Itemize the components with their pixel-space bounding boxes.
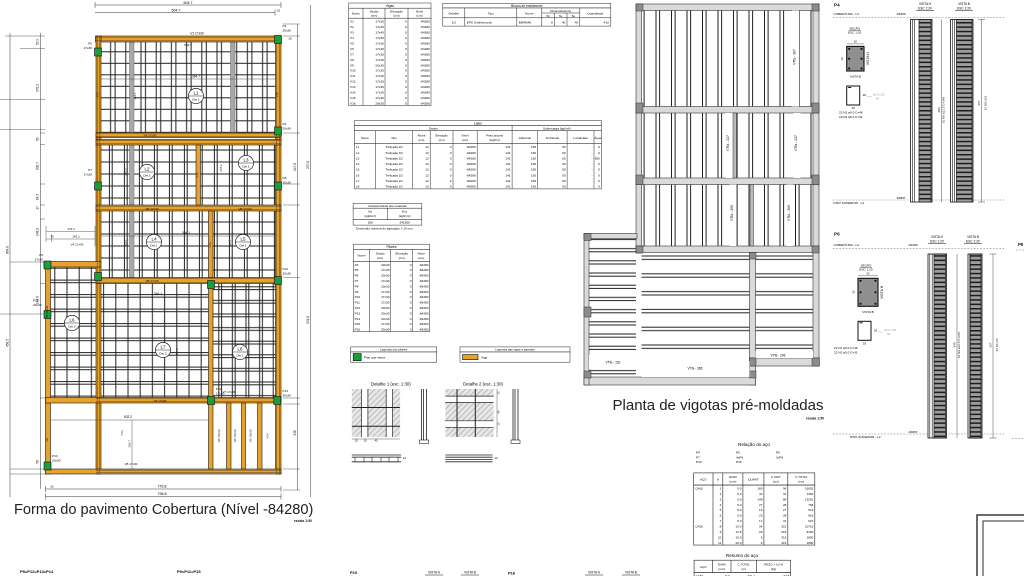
svg-text:150: 150	[531, 179, 536, 183]
svg-text:P4: P4	[355, 263, 359, 267]
svg-text:Localizada: Localizada	[573, 136, 588, 140]
svg-text:0: 0	[410, 263, 412, 267]
svg-text:DIAM: DIAM	[729, 475, 737, 479]
svg-text:5.0: 5.0	[737, 519, 742, 523]
svg-text:-84280: -84280	[420, 91, 430, 95]
svg-text:318.1: 318.1	[124, 239, 128, 247]
svg-text:17x30: 17x30	[375, 52, 384, 56]
svg-text:-84280: -84280	[420, 69, 430, 73]
svg-text:L1: L1	[356, 145, 360, 149]
svg-text:P9: P9	[39, 253, 43, 257]
svg-text:-84280: -84280	[419, 306, 429, 310]
svg-text:Ambiental: Ambiental	[546, 136, 560, 140]
svg-text:11: 11	[718, 541, 721, 545]
svg-text:V7: V7	[350, 52, 354, 56]
svg-text:ESC 1:20: ESC 1:20	[930, 239, 944, 243]
svg-text:12: 12	[425, 173, 429, 177]
svg-text:22 N2 ø5.0 C=31: 22 N2 ø5.0 C=31	[834, 350, 858, 354]
svg-text:237.6: 237.6	[306, 161, 310, 169]
svg-text:-84280: -84280	[896, 12, 906, 16]
svg-text:20x30: 20x30	[381, 317, 390, 321]
svg-text:756: 756	[808, 503, 813, 507]
svg-text:-84280: -84280	[419, 263, 429, 267]
svg-text:-84280: -84280	[908, 243, 918, 247]
svg-text:278.2: 278.2	[219, 164, 223, 172]
svg-text:CA50: CA50	[695, 525, 703, 529]
svg-text:PISO SUPERIOR - L2: PISO SUPERIOR - L2	[850, 435, 881, 439]
svg-text:0: 0	[410, 311, 412, 315]
svg-text:26: 26	[863, 93, 867, 97]
svg-text:L8: L8	[356, 185, 360, 189]
svg-text:17x30: 17x30	[35, 258, 44, 262]
svg-text:Nível: Nível	[462, 134, 469, 138]
svg-text:L3: L3	[244, 158, 249, 163]
svg-text:P10: P10	[355, 295, 361, 299]
svg-text:L2: L2	[356, 151, 360, 155]
svg-text:Det 1: Det 1	[143, 174, 151, 178]
svg-text:V5: V5	[350, 41, 354, 45]
svg-text:P9: P9	[355, 290, 359, 294]
svg-text:Legenda dos pilares: Legenda dos pilares	[380, 348, 408, 352]
svg-text:0: 0	[450, 156, 452, 160]
svg-text:5.0: 5.0	[737, 514, 742, 518]
svg-text:Det 1: Det 1	[150, 244, 158, 248]
svg-text:V9: V9	[350, 63, 354, 67]
svg-text:52.9: 52.9	[36, 39, 40, 45]
svg-text:0: 0	[410, 317, 412, 321]
svg-text:L7: L7	[161, 345, 166, 350]
svg-text:0: 0	[410, 274, 412, 278]
svg-text:SEÇÃO: SEÇÃO	[849, 25, 860, 30]
svg-text:V13: V13	[120, 430, 124, 436]
svg-text:V5 17x30: V5 17x30	[144, 134, 157, 138]
svg-text:367: 367	[977, 100, 981, 105]
svg-text:17x30: 17x30	[375, 96, 384, 100]
svg-text:L7: L7	[356, 179, 360, 183]
svg-text:Sobrecarga (kgf/m²): Sobrecarga (kgf/m²)	[543, 127, 571, 131]
svg-text:17x30: 17x30	[375, 69, 384, 73]
svg-text:Treliçada 1D: Treliçada 1D	[385, 145, 403, 149]
svg-text:VISTA H: VISTA H	[880, 285, 884, 299]
svg-text:L4: L4	[152, 237, 157, 242]
svg-text:P6: P6	[355, 274, 359, 278]
svg-text:VISTA H: VISTA H	[866, 52, 870, 66]
svg-text:V10: V10	[350, 69, 356, 73]
svg-text:QUANT: QUANT	[748, 478, 759, 482]
svg-text:8: 8	[551, 20, 553, 24]
svg-text:141: 141	[505, 185, 510, 189]
svg-text:Elevação: Elevação	[435, 134, 448, 138]
svg-text:44: 44	[759, 492, 763, 496]
svg-text:P7: P7	[696, 455, 700, 459]
svg-text:Treliçada 1D: Treliçada 1D	[385, 173, 403, 177]
svg-text:V14: V14	[266, 433, 270, 439]
svg-text:Ecs: Ecs	[402, 210, 408, 214]
svg-text:N2: N2	[876, 97, 880, 101]
svg-text:12: 12	[425, 162, 429, 166]
svg-text:VB 15x30: VB 15x30	[217, 429, 221, 442]
svg-text:0: 0	[405, 91, 407, 95]
svg-text:0: 0	[410, 295, 412, 299]
svg-text:22 N1 ø5.0 C=46: 22 N1 ø5.0 C=46	[834, 346, 858, 350]
svg-text:20: 20	[866, 271, 870, 275]
svg-text:P4: P4	[834, 3, 840, 8]
svg-text:12: 12	[425, 151, 429, 155]
svg-text:-: -	[591, 168, 592, 172]
svg-text:17x30: 17x30	[84, 46, 93, 50]
svg-text:V16: V16	[350, 101, 356, 105]
svg-text:315: 315	[781, 541, 786, 545]
svg-text:20x30: 20x30	[283, 127, 292, 131]
svg-text:141: 141	[505, 179, 510, 183]
svg-text:SEÇÃO: SEÇÃO	[861, 262, 872, 267]
svg-text:-84280: -84280	[419, 274, 429, 278]
svg-text:-84280: -84280	[420, 52, 430, 56]
svg-text:Treliçada 1D: Treliçada 1D	[385, 185, 403, 189]
svg-text:C.UNIT: C.UNIT	[771, 475, 781, 479]
svg-text:0: 0	[410, 284, 412, 288]
svg-text:Treliçada 1D: Treliçada 1D	[385, 179, 403, 183]
svg-text:Detalhe 1 (esc. 1:30): Detalhe 1 (esc. 1:30)	[371, 381, 411, 386]
svg-text:Dados: Dados	[429, 127, 438, 131]
svg-text:P13: P13	[33, 299, 39, 303]
svg-text:P12: P12	[355, 306, 361, 310]
svg-text:616: 616	[808, 514, 813, 518]
svg-text:17x30: 17x30	[375, 85, 384, 89]
svg-text:P16: P16	[736, 460, 742, 464]
svg-text:-84280: -84280	[420, 85, 430, 89]
svg-text:10710: 10710	[805, 525, 814, 529]
svg-text:-84897: -84897	[896, 196, 906, 200]
svg-text:22 N2 ø5.0 C=31: 22 N2 ø5.0 C=31	[839, 115, 863, 119]
svg-text:456.5: 456.5	[5, 339, 9, 347]
svg-text:34: 34	[759, 525, 763, 529]
svg-text:148.0: 148.0	[36, 228, 40, 236]
svg-text:P8: P8	[283, 176, 287, 180]
svg-text:50: 50	[562, 179, 566, 183]
svg-text:0: 0	[450, 173, 452, 177]
svg-text:Det 1: Det 1	[242, 165, 250, 169]
svg-text:150: 150	[531, 156, 536, 160]
svg-text:-84280: -84280	[420, 20, 430, 24]
svg-text:-84280: -84280	[420, 80, 430, 84]
svg-text:V14: V14	[350, 91, 356, 95]
svg-text:-84280: -84280	[466, 156, 476, 160]
svg-text:(kg): (kg)	[771, 567, 776, 571]
svg-text:61 N9 ø12.5 C=248: 61 N9 ø12.5 C=248	[942, 97, 946, 124]
svg-text:-: -	[591, 151, 592, 155]
svg-text:50: 50	[562, 173, 566, 177]
svg-text:VTfa - 227: VTfa - 227	[794, 135, 798, 151]
svg-text:Resumo do aço: Resumo do aço	[726, 553, 759, 558]
svg-text:CA60: CA60	[695, 486, 703, 490]
svg-text:141: 141	[505, 145, 510, 149]
svg-text:26: 26	[759, 530, 763, 534]
svg-text:Nome: Nome	[525, 11, 534, 15]
svg-text:276.2: 276.2	[36, 84, 40, 92]
svg-text:12: 12	[403, 456, 407, 460]
svg-text:31: 31	[783, 492, 787, 496]
svg-text:241500: 241500	[399, 221, 410, 225]
svg-text:17: 17	[759, 519, 763, 523]
svg-text:27: 27	[783, 508, 787, 512]
svg-text:Água: Água	[594, 136, 601, 140]
svg-text:18: 18	[852, 106, 856, 110]
svg-text:10: 10	[277, 9, 281, 13]
svg-text:1364: 1364	[807, 492, 814, 496]
svg-text:(cm): (cm)	[418, 256, 424, 260]
svg-text:410: 410	[604, 20, 609, 24]
svg-text:0: 0	[410, 301, 412, 305]
svg-text:Adicional: Adicional	[519, 136, 532, 140]
svg-text:(cm): (cm)	[399, 256, 405, 260]
svg-text:22: 22	[759, 514, 763, 518]
svg-text:(mm): (mm)	[729, 480, 736, 484]
svg-text:V12: V12	[350, 80, 356, 84]
svg-text:V2: V2	[350, 25, 354, 29]
svg-text:-: -	[591, 173, 592, 177]
svg-text:Planta de vigotas pré-moldadas: Planta de vigotas pré-moldadas	[613, 397, 824, 414]
svg-text:VTfa - 365: VTfa - 365	[688, 367, 703, 371]
svg-text:20x30: 20x30	[283, 181, 292, 185]
svg-text:142.1: 142.1	[72, 234, 80, 238]
svg-text:(kgf/cm²): (kgf/cm²)	[399, 214, 411, 218]
svg-text:1890: 1890	[807, 541, 814, 545]
svg-text:3xP9: 3xP9	[776, 455, 783, 459]
svg-text:318.1: 318.1	[133, 92, 137, 100]
svg-text:0: 0	[405, 74, 407, 78]
svg-text:-: -	[591, 156, 592, 160]
svg-text:17x30: 17x30	[381, 322, 390, 326]
svg-text:Det 1: Det 1	[239, 244, 247, 248]
svg-text:278.2: 278.2	[124, 168, 128, 176]
svg-text:5b: 5b	[546, 14, 550, 18]
svg-text:Relação do aço: Relação do aço	[738, 442, 770, 447]
svg-text:864.6: 864.6	[5, 246, 9, 254]
svg-text:50: 50	[562, 185, 566, 189]
svg-text:17x30: 17x30	[375, 91, 384, 95]
svg-text:0: 0	[410, 328, 412, 332]
svg-text:0: 0	[598, 145, 600, 149]
svg-text:V8 17x30: V8 17x30	[125, 462, 138, 466]
svg-text:-84280: -84280	[466, 173, 476, 177]
svg-text:50: 50	[562, 156, 566, 160]
svg-text:PISO SUPERIOR - L2: PISO SUPERIOR - L2	[834, 201, 865, 205]
svg-text:17x30: 17x30	[375, 80, 384, 84]
svg-text:22 N4 c/6: 22 N4 c/6	[995, 338, 999, 351]
svg-text:20x30: 20x30	[375, 101, 384, 105]
svg-text:P10: P10	[52, 454, 58, 458]
svg-text:0: 0	[450, 168, 452, 172]
svg-text:12: 12	[425, 168, 429, 172]
svg-text:COBERTURA - L3: COBERTURA - L3	[834, 243, 860, 247]
svg-text:P5: P5	[88, 42, 92, 46]
svg-text:12: 12	[425, 179, 429, 183]
svg-text:L1: L1	[194, 91, 199, 96]
svg-text:0: 0	[410, 279, 412, 283]
svg-text:0: 0	[450, 145, 452, 149]
svg-text:B8/40/40: B8/40/40	[519, 20, 532, 24]
svg-text:P8: P8	[1018, 242, 1024, 247]
svg-text:P14: P14	[355, 317, 361, 321]
svg-text:V4 17x30: V4 17x30	[71, 243, 84, 247]
svg-text:VISTA B: VISTA B	[464, 571, 476, 575]
svg-text:5.0: 5.0	[737, 492, 742, 496]
svg-text:364.1: 364.1	[182, 231, 190, 235]
svg-text:250: 250	[368, 221, 373, 225]
svg-text:17x40: 17x40	[375, 74, 384, 78]
svg-text:1890: 1890	[807, 535, 814, 539]
svg-text:630.7: 630.7	[36, 162, 40, 170]
svg-text:318.1: 318.1	[228, 239, 232, 247]
svg-text:17x30: 17x30	[84, 173, 93, 177]
svg-text:58: 58	[36, 460, 40, 464]
svg-text:P10: P10	[350, 570, 358, 575]
svg-text:-: -	[591, 162, 592, 166]
svg-text:V1 17x30: V1 17x30	[190, 32, 204, 36]
svg-text:-84280: -84280	[466, 168, 476, 172]
svg-text:12: 12	[494, 456, 498, 460]
svg-text:20x30: 20x30	[381, 263, 390, 267]
svg-text:22 N1 ø5.0 C=46: 22 N1 ø5.0 C=46	[839, 111, 863, 115]
svg-text:V3: V3	[350, 31, 354, 35]
svg-text:-84280: -84280	[466, 185, 476, 189]
svg-text:Características dos materiais: Características dos materiais	[368, 204, 407, 208]
svg-text:-84280: -84280	[419, 301, 429, 305]
svg-text:28: 28	[783, 514, 787, 518]
svg-text:150: 150	[531, 168, 536, 172]
svg-text:8190: 8190	[807, 530, 814, 534]
svg-text:30: 30	[50, 234, 54, 238]
svg-text:0: 0	[405, 36, 407, 40]
svg-text:Pilar que nasce: Pilar que nasce	[364, 356, 386, 360]
svg-text:Treliçada 1D: Treliçada 1D	[385, 168, 403, 172]
svg-text:Tipo: Tipo	[391, 136, 397, 140]
svg-text:-84280: -84280	[420, 36, 430, 40]
svg-text:Treliçada 1D: Treliçada 1D	[385, 156, 403, 160]
svg-text:V11: V11	[350, 74, 356, 78]
svg-text:AÇO: AÇO	[700, 478, 707, 482]
svg-text:ESC 1:20: ESC 1:20	[848, 31, 862, 35]
svg-text:456.5: 456.5	[175, 348, 179, 356]
svg-text:141: 141	[505, 162, 510, 166]
svg-text:ESC 1:20: ESC 1:20	[957, 6, 971, 10]
svg-text:V9: V9	[45, 438, 49, 442]
svg-text:P8: P8	[355, 284, 359, 288]
svg-text:V16: V16	[96, 92, 100, 98]
svg-text:16.0: 16.0	[736, 535, 742, 539]
svg-text:-84280: -84280	[420, 63, 430, 67]
svg-text:Viga: Viga	[481, 356, 487, 360]
svg-text:-84280: -84280	[419, 311, 429, 315]
svg-text:0: 0	[410, 290, 412, 294]
svg-text:P4: P4	[696, 451, 700, 455]
svg-text:0: 0	[405, 101, 407, 105]
svg-text:-84280: -84280	[420, 41, 430, 45]
svg-text:27: 27	[759, 503, 763, 507]
svg-text:17x30: 17x30	[381, 290, 390, 294]
svg-text:364.1: 364.1	[154, 292, 162, 296]
svg-text:50: 50	[562, 162, 566, 166]
svg-text:10: 10	[497, 391, 501, 395]
svg-text:231.8: 231.8	[306, 316, 310, 324]
svg-text:96: 96	[783, 486, 787, 490]
svg-text:16092: 16092	[805, 486, 814, 490]
svg-text:-84280: -84280	[419, 317, 429, 321]
svg-text:VB 15x30: VB 15x30	[233, 429, 237, 442]
svg-text:(cm): (cm)	[377, 256, 383, 260]
svg-text:-84280: -84280	[419, 290, 429, 294]
svg-text:0: 0	[598, 179, 600, 183]
svg-text:17: 17	[36, 206, 40, 210]
svg-text:20x30: 20x30	[33, 303, 42, 307]
svg-text:-84280: -84280	[419, 295, 429, 299]
svg-text:VISTA B: VISTA B	[625, 571, 637, 575]
svg-text:(kgf/m²): (kgf/m²)	[489, 138, 499, 142]
svg-text:P5: P5	[736, 451, 740, 455]
svg-text:-84280: -84280	[420, 74, 430, 78]
svg-text:VISTA B: VISTA B	[850, 75, 861, 79]
svg-text:20x30: 20x30	[381, 306, 390, 310]
svg-text:Treliçada 1D: Treliçada 1D	[385, 162, 403, 166]
svg-text:Det 1: Det 1	[192, 98, 200, 102]
svg-text:V1: V1	[350, 20, 354, 24]
svg-text:Det 2: Det 2	[68, 325, 76, 329]
svg-text:17x30: 17x30	[381, 301, 390, 305]
svg-text:141: 141	[505, 168, 510, 172]
svg-text:Dimensões(cm): Dimensões(cm)	[550, 9, 571, 13]
svg-text:0: 0	[405, 69, 407, 73]
svg-text:13261: 13261	[805, 497, 814, 501]
svg-text:17x30: 17x30	[216, 392, 225, 396]
svg-text:Vigas: Vigas	[386, 4, 395, 8]
svg-text:-84280: -84280	[420, 25, 430, 29]
svg-text:escala 1:50: escala 1:50	[806, 417, 824, 421]
svg-text:P4: P4	[283, 24, 287, 28]
svg-text:504.7: 504.7	[172, 9, 181, 13]
svg-text:-84280: -84280	[420, 31, 430, 35]
svg-text:P9=P11=P15: P9=P11=P15	[177, 569, 201, 574]
svg-text:0: 0	[410, 306, 412, 310]
svg-text:89: 89	[783, 497, 787, 501]
svg-text:VISTA H: VISTA H	[428, 571, 441, 575]
svg-text:247.8: 247.8	[293, 163, 297, 171]
svg-text:Dimensão máxima do agregado =: Dimensão máxima do agregado = 19 mm	[356, 227, 413, 231]
svg-text:17x40: 17x40	[375, 31, 384, 35]
svg-text:P12: P12	[283, 267, 289, 271]
svg-text:20.0: 20.0	[736, 541, 742, 545]
svg-text:Nome: Nome	[352, 11, 361, 15]
svg-text:632.2: 632.2	[124, 415, 132, 419]
svg-text:N2: N2	[887, 332, 891, 336]
svg-text:(cm): (cm)	[393, 14, 399, 18]
svg-text:(kgf/cm²): (kgf/cm²)	[364, 214, 376, 218]
svg-text:17x40: 17x40	[375, 25, 384, 29]
svg-text:P15: P15	[355, 322, 361, 326]
svg-text:5.0: 5.0	[737, 503, 742, 507]
svg-text:P5=P12=P13=P14: P5=P12=P13=P14	[20, 569, 54, 574]
svg-text:P11: P11	[355, 301, 361, 305]
svg-text:L6: L6	[356, 173, 360, 177]
svg-text:17x30: 17x30	[375, 58, 384, 62]
svg-text:19: 19	[759, 508, 763, 512]
svg-text:P6: P6	[776, 451, 780, 455]
svg-text:P7: P7	[355, 279, 359, 283]
svg-text:0: 0	[405, 47, 407, 51]
svg-text:20x30: 20x30	[52, 459, 61, 463]
svg-text:(m): (m)	[742, 567, 747, 571]
svg-text:20: 20	[50, 485, 54, 489]
